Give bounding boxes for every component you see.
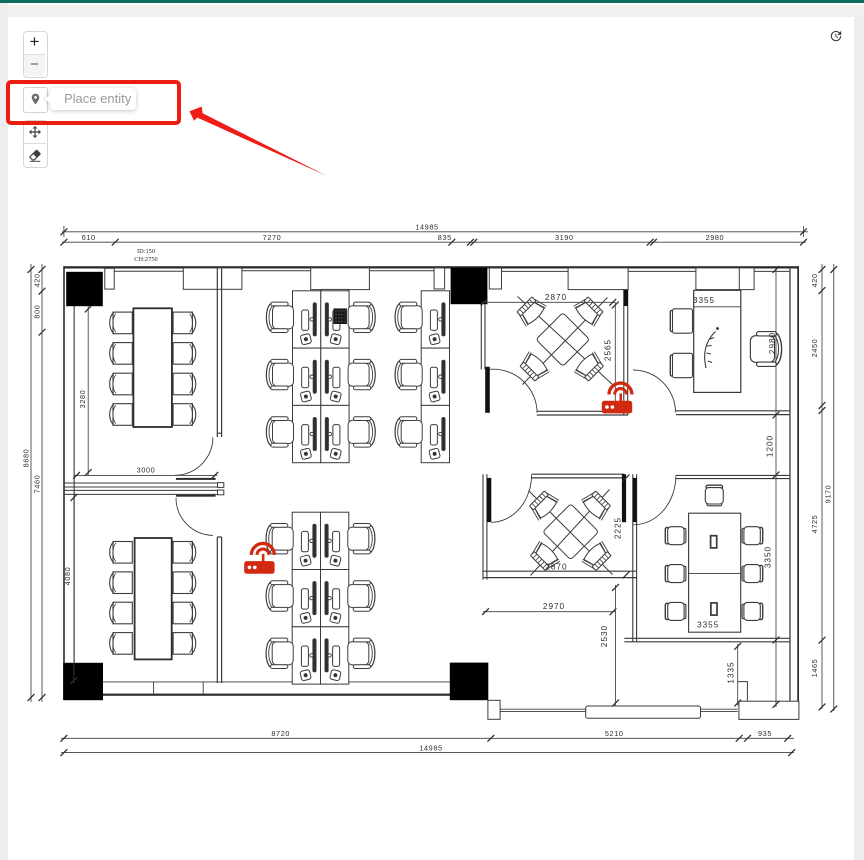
svg-text:9170: 9170 (823, 485, 832, 504)
svg-text:7270: 7270 (263, 233, 282, 242)
svg-text:7460: 7460 (33, 475, 42, 494)
svg-text:5210: 5210 (605, 729, 624, 738)
svg-text:3355: 3355 (697, 620, 719, 629)
svg-text:3350: 3350 (763, 546, 772, 568)
svg-text:835: 835 (438, 233, 452, 242)
svg-text:2565: 2565 (604, 339, 613, 361)
svg-text:3000: 3000 (137, 466, 156, 475)
svg-text:800: 800 (33, 305, 42, 319)
svg-text:610: 610 (82, 233, 96, 242)
svg-text:8680: 8680 (22, 449, 31, 468)
svg-text:2450: 2450 (810, 339, 819, 358)
svg-text:4725: 4725 (810, 515, 819, 534)
svg-text:2980: 2980 (706, 233, 725, 242)
svg-text:2970: 2970 (543, 602, 565, 611)
svg-text:14985: 14985 (419, 744, 442, 753)
svg-text:14985: 14985 (415, 223, 438, 232)
svg-text:1465: 1465 (810, 659, 819, 678)
svg-text:3355: 3355 (693, 296, 715, 305)
svg-text:1335: 1335 (727, 661, 736, 683)
svg-text:2870: 2870 (545, 293, 567, 302)
svg-text:1200: 1200 (766, 435, 775, 457)
svg-text:8720: 8720 (271, 729, 290, 738)
svg-text:CH:2750: CH:2750 (134, 256, 157, 263)
svg-text:2225: 2225 (613, 517, 622, 539)
svg-text:2870: 2870 (545, 563, 567, 572)
svg-text:4080: 4080 (63, 567, 72, 586)
svg-text:935: 935 (758, 729, 772, 738)
svg-text:ID:150: ID:150 (137, 248, 155, 255)
svg-text:420: 420 (810, 273, 819, 287)
svg-text:2980: 2980 (768, 332, 777, 354)
svg-text:3190: 3190 (555, 233, 574, 242)
svg-text:3280: 3280 (78, 390, 87, 409)
svg-text:2530: 2530 (600, 625, 609, 647)
svg-text:420: 420 (33, 273, 42, 287)
